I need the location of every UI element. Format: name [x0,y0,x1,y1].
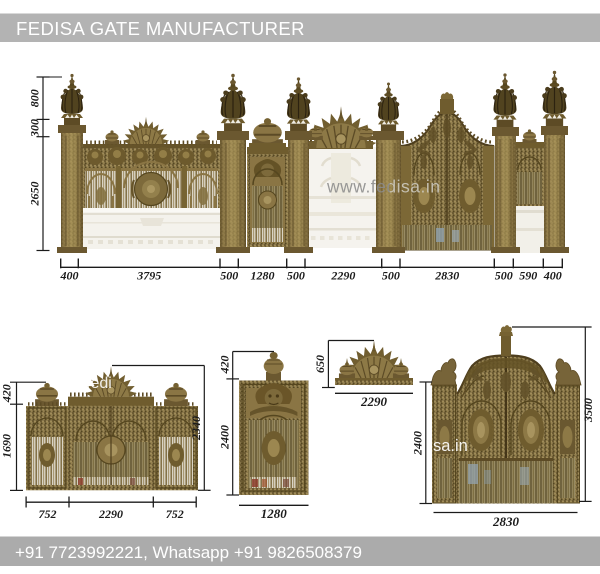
svg-text:3795: 3795 [136,269,161,283]
svg-text:590: 590 [519,269,537,283]
svg-text:fedi: fedi [86,375,112,392]
svg-text:2400: 2400 [217,425,231,450]
svg-text:3500: 3500 [581,398,595,423]
svg-text:2650: 2650 [28,182,42,207]
svg-text:2830: 2830 [492,514,520,529]
svg-text:400: 400 [543,269,562,283]
svg-text:1280: 1280 [251,269,275,283]
svg-text:1690: 1690 [0,434,14,458]
svg-text:2340: 2340 [189,416,203,441]
svg-text:300: 300 [28,119,42,138]
svg-text:2290: 2290 [330,269,355,283]
svg-text:www.fedisa.in: www.fedisa.in [326,177,441,197]
svg-text:500: 500 [495,269,513,283]
svg-text:650: 650 [313,355,327,373]
svg-text:+91 7723992221, Whatsapp +91 9: +91 7723992221, Whatsapp +91 9826508379 [15,543,362,562]
svg-text:2290: 2290 [360,394,388,409]
svg-text:500: 500 [287,269,305,283]
svg-text:2830: 2830 [434,269,459,283]
svg-text:2290: 2290 [98,507,123,521]
svg-text:500: 500 [382,269,400,283]
svg-text:FEDISA GATE MANUFACTURER: FEDISA GATE MANUFACTURER [16,18,305,39]
svg-text:800: 800 [28,89,42,107]
svg-text:752: 752 [39,507,57,521]
svg-text:1280: 1280 [261,506,288,521]
svg-text:2400: 2400 [410,431,424,456]
svg-text:420: 420 [217,356,231,375]
svg-text:752: 752 [166,507,184,521]
svg-text:500: 500 [220,269,238,283]
svg-text:400: 400 [60,269,79,283]
svg-text:sa.in: sa.in [433,437,468,455]
svg-text:420: 420 [0,384,14,403]
